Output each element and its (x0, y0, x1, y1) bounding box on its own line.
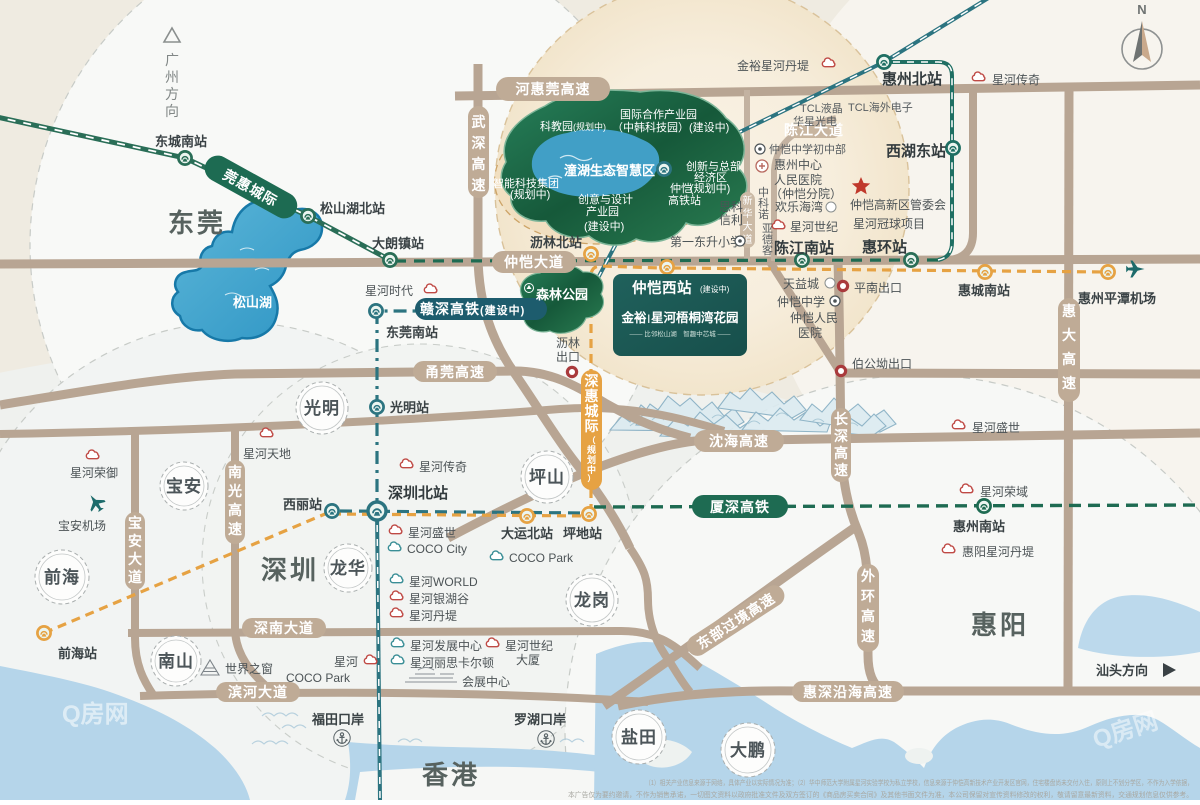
svg-text:汕头方向: 汕头方向 (1096, 663, 1148, 678)
svg-text:前海站: 前海站 (58, 646, 97, 661)
svg-text:大鹏: 大鹏 (730, 740, 766, 760)
svg-text:星河冠球项目: 星河冠球项目 (853, 217, 925, 231)
svg-text:福田口岸: 福田口岸 (311, 712, 364, 727)
svg-text:思科: 思科 (719, 200, 743, 214)
svg-text:深南大道: 深南大道 (254, 620, 314, 636)
svg-text:（1）相关产业信息来源于网络，具体产业以实际情况为准；（2）: （1）相关产业信息来源于网络，具体产业以实际情况为准；（2）华中师范大学附属星河… (645, 778, 1193, 787)
svg-text:南山: 南山 (158, 651, 194, 671)
svg-text:创意与设计: 创意与设计 (578, 192, 633, 206)
svg-text:陈江南站: 陈江南站 (774, 239, 834, 257)
svg-text:广州方向: 广州方向 (165, 52, 179, 119)
svg-text:星河: 星河 (334, 655, 358, 669)
svg-text:华星光电: 华星光电 (793, 114, 837, 128)
svg-text:坪山: 坪山 (529, 468, 565, 487)
svg-text:仲恺人民: 仲恺人民 (790, 311, 838, 325)
svg-text:(建设中): (建设中) (700, 284, 730, 294)
svg-text:宝安机场: 宝安机场 (58, 518, 106, 533)
svg-text:中科诺: 中科诺 (758, 186, 769, 221)
svg-text:甬莞高速: 甬莞高速 (425, 364, 485, 380)
svg-text:龙华: 龙华 (329, 558, 366, 578)
svg-text:人民医院: 人民医院 (774, 173, 822, 187)
svg-text:（中韩科技园）(建设中): （中韩科技园）(建设中) (612, 120, 729, 134)
svg-text:平南出口: 平南出口 (854, 280, 902, 295)
svg-text:河惠莞高速: 河惠莞高速 (516, 81, 591, 97)
svg-text:沥林: 沥林 (556, 336, 580, 350)
svg-text:高铁站: 高铁站 (668, 193, 701, 207)
svg-text:光明: 光明 (303, 398, 340, 418)
svg-text:星河传奇: 星河传奇 (419, 459, 467, 474)
svg-text:惠州南站: 惠州南站 (953, 519, 1005, 534)
svg-text:产业园: 产业园 (586, 204, 619, 218)
svg-text:惠阳: 惠阳 (971, 610, 1029, 640)
svg-text:大运北站: 大运北站 (501, 526, 553, 541)
svg-text:星河传奇: 星河传奇 (992, 72, 1040, 87)
svg-text:星河世纪: 星河世纪 (505, 639, 553, 653)
svg-text:东莞南站: 东莞南站 (386, 325, 438, 340)
svg-text:—— 比邻松山湖 智趣中芯城 ——: —— 比邻松山湖 智趣中芯城 —— (629, 329, 731, 338)
svg-text:长深高速: 长深高速 (834, 411, 849, 478)
svg-text:金裕|星河梧桐湾花园: 金裕|星河梧桐湾花园 (620, 310, 738, 325)
svg-text:医院: 医院 (798, 326, 822, 340)
svg-text:仲恺中学: 仲恺中学 (777, 294, 825, 309)
svg-text:智能科技集团: 智能科技集团 (493, 176, 559, 190)
svg-text:星河丹堤: 星河丹堤 (409, 609, 457, 623)
svg-text:罗湖口岸: 罗湖口岸 (514, 712, 566, 727)
svg-text:沈海高速: 沈海高速 (709, 433, 769, 449)
svg-text:惠州中心: 惠州中心 (774, 157, 822, 172)
svg-text:金裕星河丹堤: 金裕星河丹堤 (737, 58, 809, 73)
svg-text:滨河大道: 滨河大道 (228, 684, 288, 700)
svg-text:仲恺高新区管委会: 仲恺高新区管委会 (850, 197, 946, 212)
svg-text:会展中心: 会展中心 (462, 674, 510, 689)
svg-text:惠深沿海高速: 惠深沿海高速 (803, 684, 893, 700)
svg-text:(规划中): (规划中) (690, 181, 730, 195)
svg-text:TCL液晶: TCL液晶 (800, 101, 843, 115)
svg-text:大朗镇站: 大朗镇站 (372, 236, 424, 251)
svg-text:深圳: 深圳 (261, 555, 319, 585)
svg-text:星河世纪: 星河世纪 (790, 220, 838, 234)
svg-text:惠州北站: 惠州北站 (882, 70, 942, 88)
svg-text:星河盛世: 星河盛世 (408, 525, 456, 540)
svg-text:西湖东站: 西湖东站 (886, 142, 946, 160)
svg-text:深圳北站: 深圳北站 (388, 484, 448, 502)
svg-text:(建设中): (建设中) (584, 219, 624, 233)
svg-text:龙岗: 龙岗 (573, 590, 610, 610)
svg-text:COCO Park: COCO Park (509, 551, 574, 565)
svg-text:Q房网: Q房网 (62, 700, 129, 728)
svg-text:欢乐海湾: 欢乐海湾 (775, 199, 823, 214)
svg-text:宝安: 宝安 (166, 476, 202, 496)
svg-text:N: N (1137, 2, 1146, 17)
svg-text:惠城南站: 惠城南站 (958, 283, 1010, 298)
svg-text:星河荣域: 星河荣域 (980, 485, 1028, 499)
svg-text:坪地站: 坪地站 (563, 526, 602, 541)
svg-text:伯公坳出口: 伯公坳出口 (852, 356, 912, 371)
svg-text:仲恺中学初中部: 仲恺中学初中部 (769, 142, 846, 156)
svg-text:出口: 出口 (556, 350, 580, 364)
svg-text:亚德客: 亚德客 (762, 223, 773, 257)
svg-text:星河荣御: 星河荣御 (70, 465, 118, 480)
svg-text:仲恺: 仲恺 (670, 181, 692, 195)
svg-text:东城南站: 东城南站 (155, 134, 207, 149)
svg-text:世界之窗: 世界之窗 (225, 662, 273, 676)
svg-text:星河时代: 星河时代 (365, 284, 413, 298)
svg-text:天益城: 天益城 (783, 277, 819, 291)
svg-text:COCO Park: COCO Park (286, 671, 351, 685)
svg-text:第一东升小学: 第一东升小学 (670, 234, 742, 249)
svg-text:香港: 香港 (422, 760, 480, 790)
svg-text:(规划中): (规划中) (510, 187, 550, 201)
svg-text:国际合作产业园: 国际合作产业园 (620, 107, 697, 121)
svg-text:星河盛世: 星河盛世 (972, 420, 1020, 435)
svg-text:科教园(规划中): 科教园(规划中) (540, 119, 606, 133)
svg-text:惠环站: 惠环站 (862, 238, 907, 256)
svg-text:星河WORLD: 星河WORLD (409, 575, 478, 589)
svg-text:光明站: 光明站 (389, 400, 429, 415)
svg-text:星河银湖谷: 星河银湖谷 (409, 591, 469, 606)
svg-text:经济区: 经济区 (694, 170, 727, 184)
svg-text:西丽站: 西丽站 (283, 497, 322, 512)
svg-text:森林公园: 森林公园 (536, 287, 588, 302)
svg-text:星河天地: 星河天地 (243, 447, 291, 461)
svg-text:COCO City: COCO City (407, 542, 467, 556)
svg-text:信利: 信利 (719, 213, 743, 227)
svg-text:仲恺西站: 仲恺西站 (632, 279, 692, 297)
svg-text:沥林北站: 沥林北站 (530, 235, 582, 250)
svg-text:仲恺大道: 仲恺大道 (504, 254, 564, 270)
svg-text:松山湖: 松山湖 (233, 295, 272, 310)
svg-text:大厦: 大厦 (516, 653, 540, 667)
svg-text:本广告仅为要约邀请，不作为销售承诺，一切图文资料以政府批准文: 本广告仅为要约邀请，不作为销售承诺，一切图文资料以政府批准文件及双方签订的《商品… (568, 790, 1193, 799)
svg-text:（仲恺分院）: （仲恺分院） (770, 187, 842, 201)
svg-text:盐田: 盐田 (621, 727, 657, 747)
svg-text:松山湖北站: 松山湖北站 (320, 201, 385, 216)
svg-text:惠州平潭机场: 惠州平潭机场 (1078, 291, 1156, 306)
svg-text:前海: 前海 (44, 567, 80, 587)
svg-text:厦深高铁: 厦深高铁 (710, 499, 770, 515)
svg-text:东莞: 东莞 (168, 208, 226, 238)
svg-text:潼湖生态智慧区: 潼湖生态智慧区 (564, 163, 655, 178)
svg-text:惠阳星河丹堤: 惠阳星河丹堤 (962, 545, 1034, 559)
svg-text:TCL海外电子: TCL海外电子 (848, 100, 913, 114)
svg-text:星河发展中心: 星河发展中心 (410, 638, 482, 653)
svg-text:创新与总部: 创新与总部 (686, 159, 741, 173)
